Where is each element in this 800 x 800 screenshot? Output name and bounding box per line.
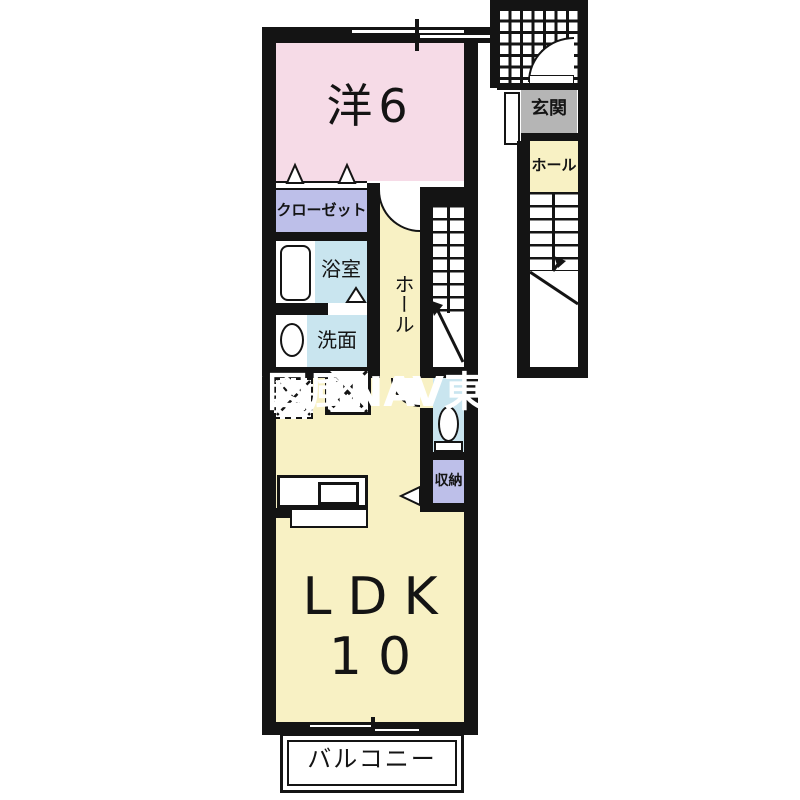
wall (420, 503, 478, 512)
bathroom-label: 浴室 (315, 259, 367, 280)
hall-label: ホール (387, 248, 413, 360)
wall (517, 367, 588, 378)
wall (420, 452, 478, 460)
wall (521, 133, 578, 141)
entrance-hall-label: ホール (530, 158, 578, 174)
ldk-size-label: 10 (276, 630, 464, 685)
window-bottom (373, 728, 419, 732)
entrance-door-leaf (529, 75, 574, 84)
balcony-label: バルコニー (287, 747, 457, 772)
kitchen-sink (318, 482, 359, 505)
window-bottom (310, 724, 374, 728)
washbasin (280, 323, 304, 357)
stairs-right-centerline (552, 192, 555, 271)
wall (420, 187, 433, 378)
storage-label: 収納 (433, 474, 464, 489)
floorplan-canvas: 洋6 クローゼット 浴室 洗面 ホール 収納 LDK 10 バルコニー 玄関 ホ… (0, 0, 800, 800)
genkan-label: 玄関 (521, 100, 577, 119)
wall (578, 0, 588, 378)
wall (276, 232, 380, 241)
wall (490, 0, 588, 8)
wall (517, 141, 530, 378)
wall (420, 187, 478, 205)
stairs-main-centerline (447, 205, 450, 313)
ldk-label: LDK (276, 570, 464, 625)
bathtub (280, 245, 311, 301)
window-top (420, 34, 490, 39)
wall (276, 303, 328, 315)
wall (490, 0, 497, 88)
washroom-label: 洗面 (307, 330, 367, 351)
watermark-text: イ図風NAV東P (226, 371, 515, 414)
wall (367, 183, 380, 377)
closet-sliding-door (276, 181, 367, 190)
wall (497, 83, 578, 90)
wall (276, 508, 291, 518)
closet-label: クローゼット (276, 203, 367, 219)
western-room-label: 洋6 (276, 82, 464, 130)
shoe-cabinet (504, 92, 520, 145)
kitchen-counter-lower (290, 508, 368, 528)
window-top-mullion (415, 19, 419, 51)
toilet-tank (434, 441, 463, 452)
